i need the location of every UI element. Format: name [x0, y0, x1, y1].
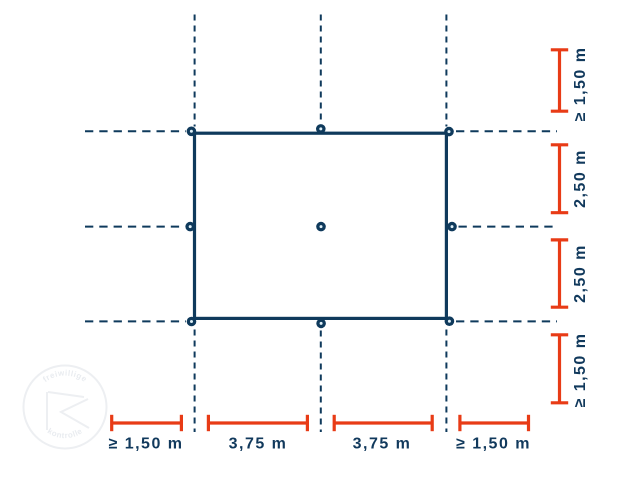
- svg-text:3,75 m: 3,75 m: [353, 436, 412, 453]
- svg-text:≥ 1,50 m: ≥ 1,50 m: [456, 436, 531, 453]
- svg-text:2,50 m: 2,50 m: [572, 244, 589, 303]
- svg-text:3,75 m: 3,75 m: [229, 436, 288, 453]
- svg-text:≥ 1,50 m: ≥ 1,50 m: [572, 332, 589, 407]
- svg-text:2,50 m: 2,50 m: [572, 149, 589, 208]
- svg-text:≥ 1,50 m: ≥ 1,50 m: [108, 436, 183, 453]
- svg-text:≥ 1,50 m: ≥ 1,50 m: [572, 46, 589, 121]
